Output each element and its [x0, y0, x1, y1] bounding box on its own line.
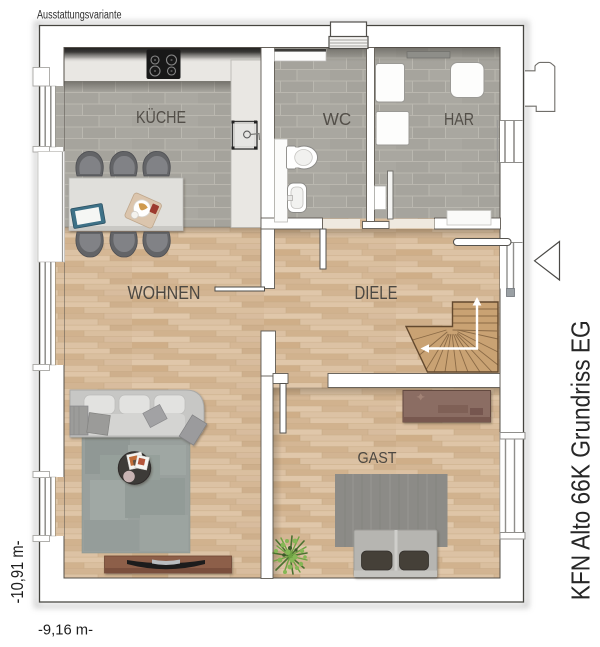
svg-text:GAST: GAST [358, 450, 397, 467]
svg-text:WC: WC [323, 109, 352, 129]
svg-text:KÜCHE: KÜCHE [136, 107, 186, 127]
svg-text:-9,16 m-: -9,16 m- [38, 622, 93, 639]
svg-text:WOHNEN: WOHNEN [128, 282, 201, 303]
svg-text:-10,91 m-: -10,91 m- [7, 540, 27, 603]
svg-text:HAR: HAR [444, 109, 474, 129]
svg-text:Ausstattungsvariante: Ausstattungsvariante [37, 10, 122, 22]
svg-text:KFN Alto 66K Grundriss EG: KFN Alto 66K Grundriss EG [566, 320, 596, 600]
svg-text:DIELE: DIELE [355, 282, 398, 303]
